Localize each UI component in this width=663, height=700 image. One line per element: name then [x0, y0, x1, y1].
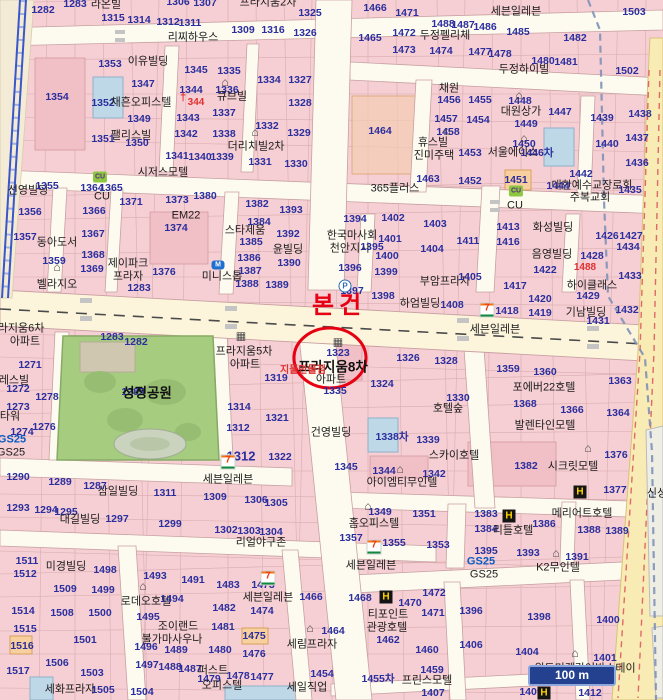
scale-bar: 100 m [528, 665, 616, 686]
map-viewport[interactable]: 12821283라온빌13151314131213111306130713091… [0, 0, 663, 700]
map-base [0, 0, 663, 700]
park [57, 336, 219, 460]
subject-annotation: 본건 [312, 294, 366, 318]
